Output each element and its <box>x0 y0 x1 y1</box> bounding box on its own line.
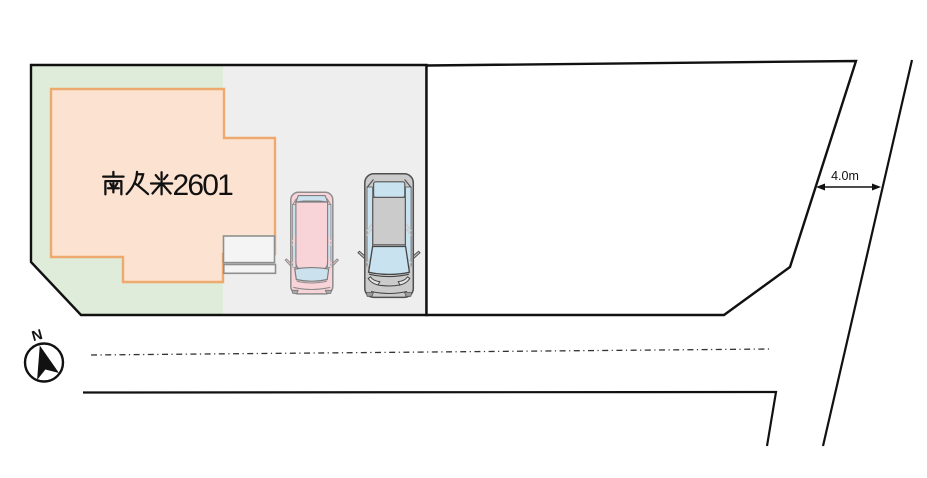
svg-text:2601: 2601 <box>173 169 234 202</box>
svg-text:4.0m: 4.0m <box>831 169 859 183</box>
